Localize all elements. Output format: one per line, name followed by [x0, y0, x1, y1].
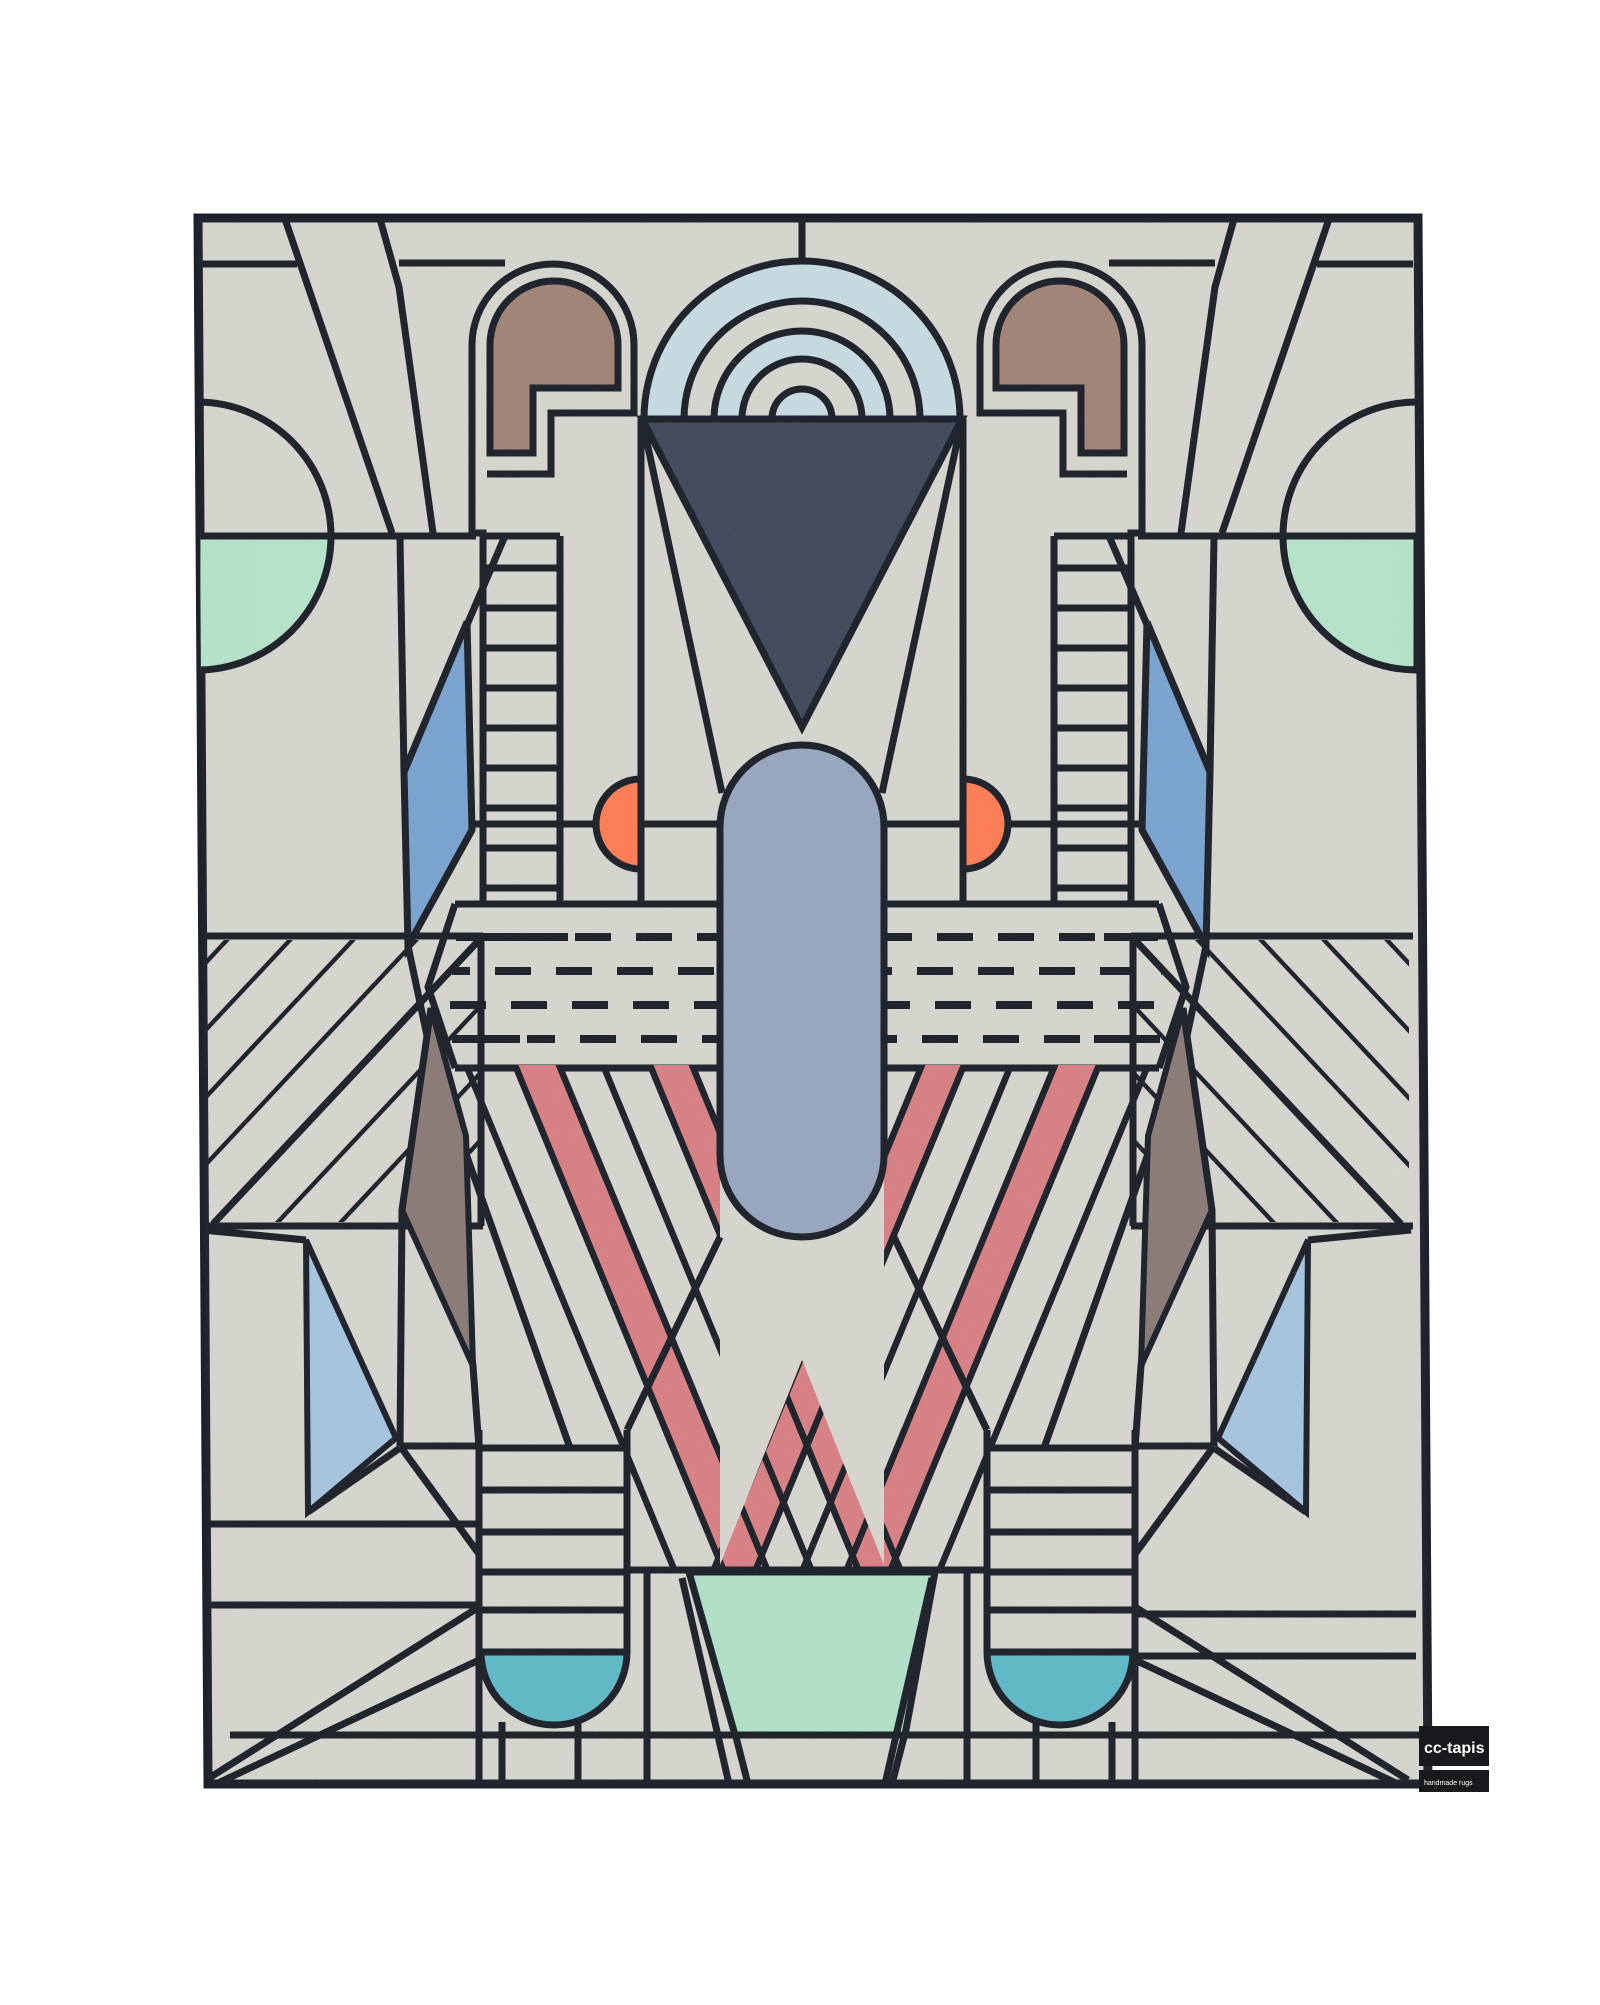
svg-text:cc-tapis: cc-tapis	[1424, 1740, 1485, 1757]
svg-text:handmade rugs: handmade rugs	[1424, 1780, 1473, 1787]
